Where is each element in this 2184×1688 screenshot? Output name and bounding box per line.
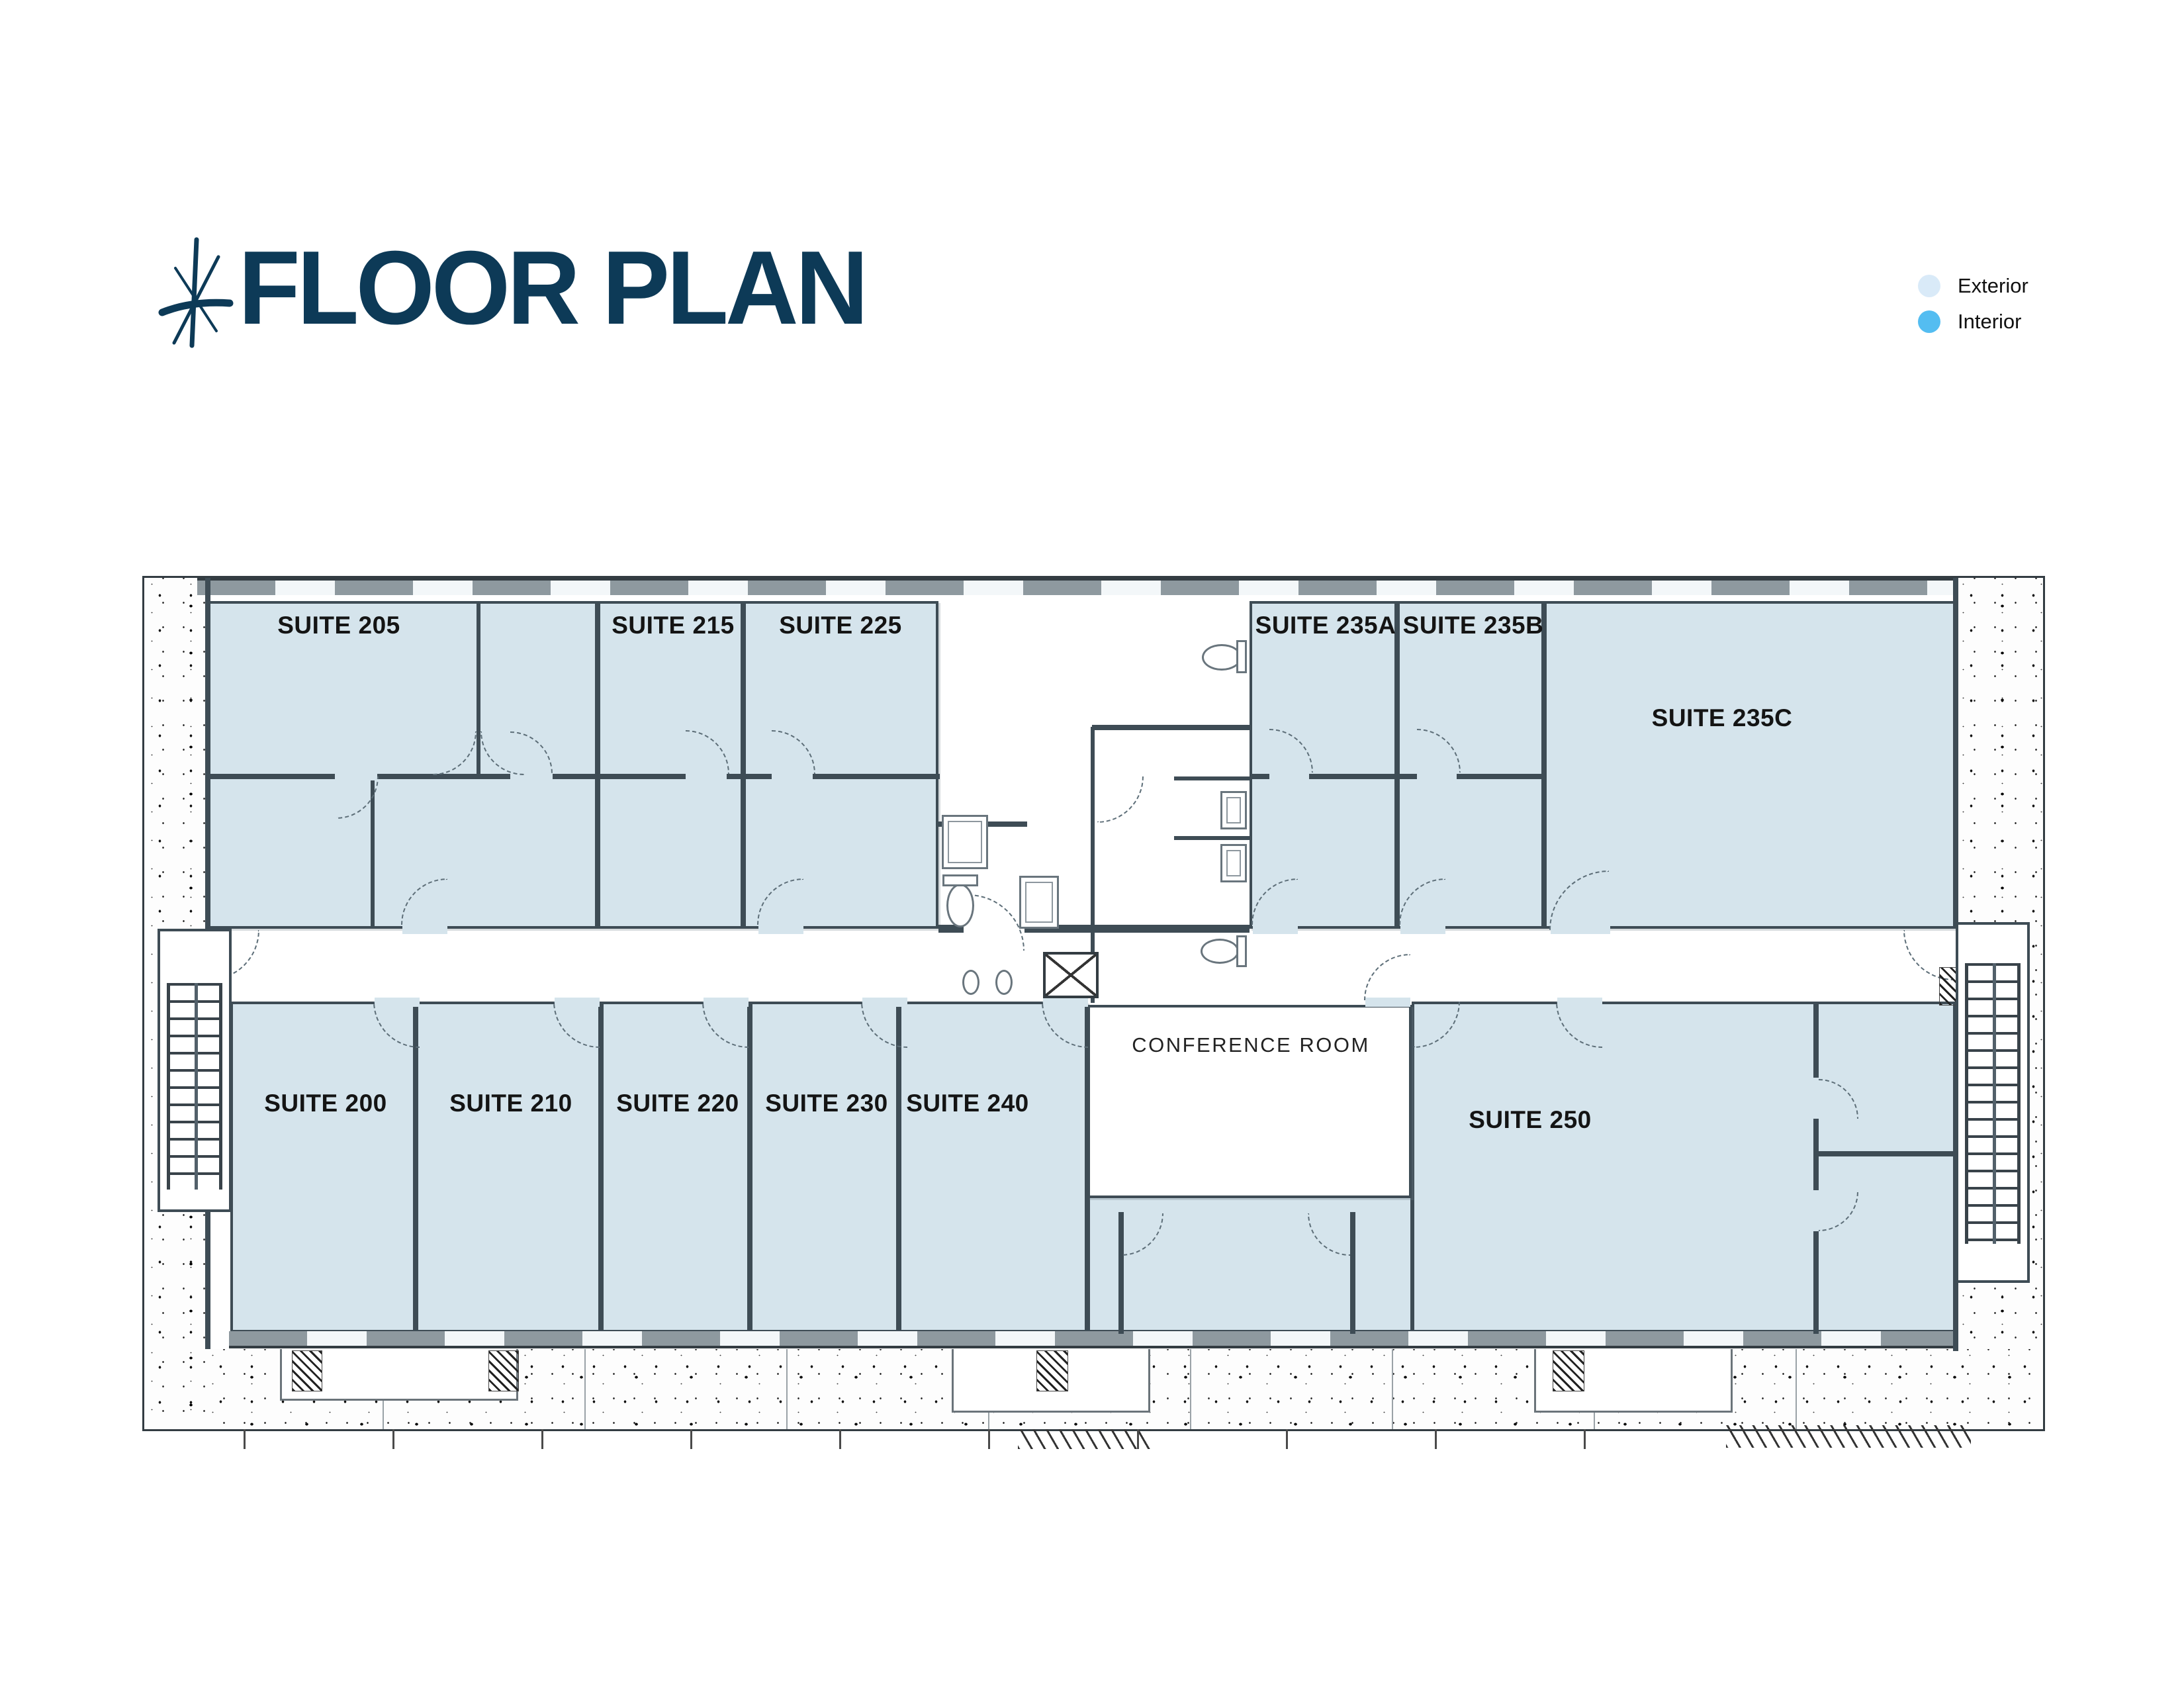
elevator-shaft-icon bbox=[1043, 952, 1099, 998]
page-title: FLOOR PLAN bbox=[238, 228, 866, 348]
room-suite-220: SUITE 220 bbox=[601, 1002, 750, 1333]
urinal-icon bbox=[995, 970, 1013, 995]
sink-icon bbox=[1220, 791, 1247, 829]
suite-door-opening bbox=[758, 923, 803, 934]
room-suite-240: SUITE 240 bbox=[899, 1002, 1087, 1333]
staircase-right bbox=[1956, 922, 2030, 1283]
grade-tick bbox=[1584, 1429, 1586, 1449]
interior-wall bbox=[1174, 776, 1251, 780]
toilet-tank-icon bbox=[1236, 640, 1247, 673]
building-wall-right bbox=[1953, 578, 1958, 925]
room-label-suite-210: SUITE 210 bbox=[449, 1090, 572, 1117]
building-wall-right bbox=[1953, 1280, 1958, 1351]
hatch-patch bbox=[488, 1350, 519, 1391]
room-label-suite-220: SUITE 220 bbox=[616, 1090, 739, 1117]
hatch-patch bbox=[292, 1350, 322, 1391]
grade-tick bbox=[839, 1429, 841, 1449]
toilet-tank-icon bbox=[942, 874, 978, 886]
walkway-joint bbox=[1796, 1349, 1797, 1429]
grade-tick bbox=[1286, 1429, 1288, 1449]
room-label-suite-225: SUITE 225 bbox=[779, 612, 901, 639]
room-label-suite-240: SUITE 240 bbox=[906, 1090, 1028, 1117]
walkway-joint bbox=[786, 1349, 788, 1429]
shower-icon bbox=[942, 815, 988, 869]
walkway-joint bbox=[584, 1349, 586, 1429]
hatch-patch bbox=[1939, 967, 1956, 1006]
room-label-suite-235c: SUITE 235C bbox=[1652, 704, 1793, 732]
toilet-icon bbox=[1201, 939, 1239, 964]
suite-door-opening bbox=[402, 923, 447, 934]
legend-item-exterior: Exterior bbox=[1918, 268, 2028, 304]
toilet-tank-icon bbox=[1236, 935, 1247, 967]
ground-hatch bbox=[1018, 1429, 1150, 1449]
suite-door-opening bbox=[1253, 923, 1298, 934]
room-suite-210: SUITE 210 bbox=[416, 1002, 601, 1333]
toilet-icon bbox=[1202, 644, 1242, 671]
grade-tick bbox=[1137, 1429, 1139, 1449]
walkway-joint bbox=[1392, 1349, 1393, 1429]
room-label-suite-230: SUITE 230 bbox=[765, 1090, 887, 1117]
grade-tick bbox=[541, 1429, 543, 1449]
room-label-suite-205: SUITE 205 bbox=[277, 612, 400, 639]
grade-tick bbox=[1435, 1429, 1437, 1449]
window-band-bottom bbox=[229, 1331, 1956, 1348]
staircase-left bbox=[158, 929, 232, 1212]
hatch-patch bbox=[1036, 1350, 1068, 1391]
window-band-top bbox=[197, 578, 1958, 595]
room-label-suite-235a: SUITE 235A bbox=[1255, 612, 1396, 639]
interior-wall bbox=[1816, 1151, 1957, 1156]
grade-tick bbox=[244, 1429, 246, 1449]
door-opening bbox=[1269, 773, 1309, 780]
door-opening bbox=[1417, 773, 1457, 780]
exterior-color-dot bbox=[1918, 275, 1940, 297]
walkway-joint bbox=[1190, 1349, 1191, 1429]
room-suite-230: SUITE 230 bbox=[750, 1002, 899, 1333]
legend-label-exterior: Exterior bbox=[1958, 274, 2028, 298]
grade-tick bbox=[988, 1429, 990, 1449]
stair-rail bbox=[1993, 963, 1996, 1244]
interior-wall bbox=[1174, 836, 1251, 840]
grade-tick bbox=[690, 1429, 692, 1449]
interior-wall bbox=[1813, 1004, 1819, 1334]
toilet-icon bbox=[946, 884, 974, 927]
legend-item-interior: Interior bbox=[1918, 304, 2028, 340]
room-conference-room: CONFERENCE ROOM bbox=[1087, 1005, 1412, 1198]
interior-wall bbox=[477, 604, 480, 777]
interior-wall bbox=[1092, 725, 1251, 730]
room-label-suite-235b: SUITE 235B bbox=[1403, 612, 1544, 639]
room-label-suite-215: SUITE 215 bbox=[612, 612, 734, 639]
sink-icon bbox=[1220, 844, 1247, 882]
logo-star-icon bbox=[156, 232, 242, 354]
sink-counter-icon bbox=[1019, 876, 1059, 929]
room-suite-250: SUITE 250 bbox=[1412, 1002, 1956, 1333]
room-label-suite-200: SUITE 200 bbox=[264, 1090, 387, 1117]
stair-rail bbox=[195, 983, 198, 1190]
interior-color-dot bbox=[1918, 310, 1940, 333]
interior-wall bbox=[1350, 1212, 1355, 1334]
legend-label-interior: Interior bbox=[1958, 310, 2021, 334]
legend: Exterior Interior bbox=[1918, 268, 2028, 340]
urinal-icon bbox=[962, 970, 979, 995]
room-label-conference-room: CONFERENCE ROOM bbox=[1132, 1033, 1370, 1057]
hatch-patch bbox=[1553, 1350, 1584, 1391]
floor-plan-canvas: SUITE 205SUITE 215SUITE 225SUITE 235ASUI… bbox=[142, 576, 2045, 1431]
ground-hatch bbox=[1726, 1425, 1971, 1448]
grade-tick bbox=[392, 1429, 394, 1449]
room-suite-200: SUITE 200 bbox=[230, 1002, 416, 1333]
room-label-suite-250: SUITE 250 bbox=[1469, 1106, 1591, 1134]
suite-door-opening bbox=[1400, 923, 1445, 934]
